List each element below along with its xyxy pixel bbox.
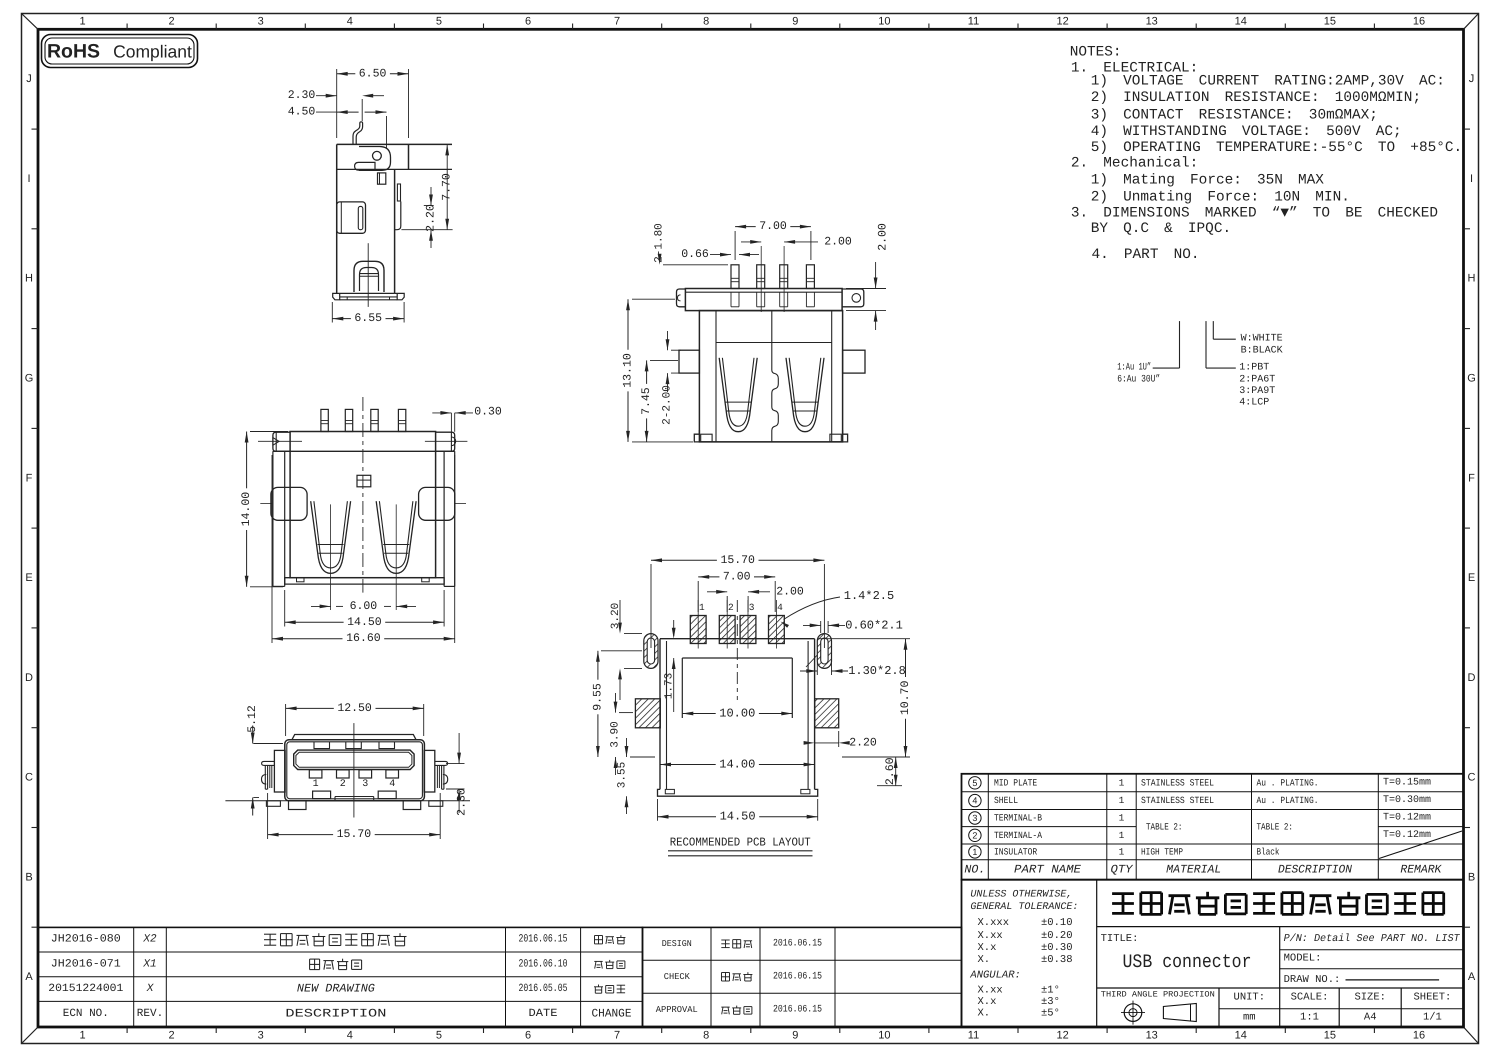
- svg-text:1.4*2.5: 1.4*2.5: [844, 589, 894, 603]
- svg-text:7.70: 7.70: [441, 173, 454, 201]
- svg-text:14: 14: [1235, 15, 1247, 27]
- svg-text:15: 15: [1324, 1030, 1336, 1042]
- svg-text:6:Au 30U”: 6:Au 30U”: [1117, 373, 1160, 385]
- svg-text:7: 7: [614, 15, 620, 27]
- svg-text:11: 11: [968, 15, 979, 27]
- svg-text:P/N: Detail See PART NO. LIST: P/N: Detail See PART NO. LIST: [1284, 933, 1461, 945]
- svg-text:5) OPERATING TEMPERATURE:-55°C: 5) OPERATING TEMPERATURE:-55°C TO +85°C.: [1091, 140, 1462, 156]
- svg-text:3:PA9T: 3:PA9T: [1239, 386, 1275, 397]
- svg-text:1:Au 1U”: 1:Au 1U”: [1117, 361, 1151, 373]
- svg-text:2. Mechanical:: 2. Mechanical:: [1071, 156, 1198, 172]
- svg-text:B:BLACK: B:BLACK: [1241, 346, 1283, 357]
- svg-text:MODEL:: MODEL:: [1284, 953, 1322, 965]
- svg-text:BY Q.C & IPQC.: BY Q.C & IPQC.: [1091, 221, 1231, 237]
- svg-text:T=0.15mm: T=0.15mm: [1383, 777, 1431, 788]
- svg-text:MID PLATE: MID PLATE: [994, 777, 1037, 788]
- svg-text:MATERIAL: MATERIAL: [1166, 863, 1221, 876]
- svg-text:STAINLESS STEEL: STAINLESS STEEL: [1141, 777, 1214, 788]
- svg-text:10: 10: [878, 15, 890, 27]
- svg-text:J: J: [1469, 73, 1475, 85]
- svg-text:±3°: ±3°: [1041, 996, 1060, 1008]
- svg-text:0.66: 0.66: [681, 248, 709, 261]
- svg-text:C: C: [1468, 772, 1476, 784]
- svg-text:B: B: [25, 871, 32, 883]
- svg-text:X.: X.: [978, 1008, 991, 1020]
- svg-text:HIGH TEMP: HIGH TEMP: [1141, 846, 1183, 857]
- svg-text:2.20: 2.20: [425, 204, 438, 232]
- svg-text:2) INSULATION RESISTANCE: 1000: 2) INSULATION RESISTANCE: 1000MΩMIN;: [1091, 90, 1421, 106]
- svg-text:UNLESS OTHERWISE,: UNLESS OTHERWISE,: [970, 890, 1072, 901]
- svg-text:JH2016-071: JH2016-071: [51, 958, 121, 970]
- svg-text:TERMINAL-A: TERMINAL-A: [994, 830, 1042, 841]
- svg-text:1.30*2.8: 1.30*2.8: [848, 664, 906, 678]
- svg-text:13: 13: [1146, 1030, 1158, 1042]
- svg-text:3: 3: [258, 15, 264, 27]
- svg-text:F: F: [26, 472, 33, 484]
- svg-text:1: 1: [1119, 795, 1125, 806]
- svg-text:2016.06.15: 2016.06.15: [773, 938, 822, 949]
- svg-text:CHECK: CHECK: [664, 972, 691, 982]
- svg-text:2.00: 2.00: [776, 585, 804, 598]
- svg-text:2: 2: [169, 1030, 175, 1042]
- svg-text:12: 12: [1056, 15, 1068, 27]
- svg-text:X.: X.: [978, 954, 991, 966]
- svg-text:9.55: 9.55: [591, 683, 604, 711]
- svg-text:8: 8: [703, 15, 709, 27]
- svg-text:±1°: ±1°: [1041, 985, 1060, 997]
- svg-text:6.55: 6.55: [354, 312, 382, 325]
- svg-text:TERMINAL-B: TERMINAL-B: [994, 813, 1042, 824]
- svg-text:7.45: 7.45: [640, 387, 653, 415]
- svg-text:14.00: 14.00: [719, 758, 755, 772]
- svg-text:NO.: NO.: [964, 863, 985, 876]
- svg-text:A4: A4: [1364, 1012, 1377, 1024]
- svg-text:±0.20: ±0.20: [1041, 930, 1073, 942]
- svg-text:INSULATOR: INSULATOR: [994, 846, 1037, 857]
- svg-text:2: 2: [972, 830, 977, 840]
- svg-text:T=0.12mm: T=0.12mm: [1383, 813, 1431, 824]
- svg-text:J: J: [26, 73, 32, 85]
- svg-text:DRAW NO.:: DRAW NO.:: [1284, 974, 1341, 986]
- svg-text:3) CONTACT RESISTANCE: 30mΩMAX: 3) CONTACT RESISTANCE: 30mΩMAX;: [1091, 107, 1378, 123]
- svg-text:±5°: ±5°: [1041, 1008, 1060, 1020]
- svg-text:14: 14: [1235, 1030, 1247, 1042]
- svg-text:E: E: [1468, 572, 1475, 584]
- svg-text:1.73: 1.73: [664, 673, 676, 699]
- svg-text:I: I: [1470, 173, 1473, 185]
- svg-text:2.20: 2.20: [849, 736, 877, 749]
- svg-text:REV.: REV.: [137, 1008, 163, 1020]
- svg-text:Black: Black: [1257, 846, 1280, 857]
- svg-text:Au . PLATING.: Au . PLATING.: [1257, 795, 1319, 806]
- svg-text:9: 9: [792, 1030, 798, 1042]
- svg-text:6.00: 6.00: [350, 600, 378, 613]
- svg-text:T=0.30mm: T=0.30mm: [1383, 795, 1431, 806]
- svg-text:D: D: [25, 672, 33, 684]
- svg-text:1: 1: [699, 602, 705, 613]
- svg-text:mm: mm: [1243, 1012, 1256, 1024]
- svg-text:±0.38: ±0.38: [1041, 954, 1073, 966]
- svg-text:10.00: 10.00: [719, 707, 755, 721]
- svg-text:6: 6: [525, 15, 531, 27]
- svg-text:1/1: 1/1: [1423, 1012, 1442, 1024]
- svg-text:Compliant: Compliant: [113, 42, 192, 62]
- svg-text:2016.06.10: 2016.06.10: [519, 958, 568, 970]
- svg-text:C: C: [25, 772, 33, 784]
- svg-text:SIZE:: SIZE:: [1354, 992, 1386, 1004]
- svg-text:T=0.12mm: T=0.12mm: [1383, 830, 1431, 841]
- svg-text:2-2.00: 2-2.00: [662, 385, 674, 425]
- svg-text:X.xx: X.xx: [978, 985, 1003, 997]
- svg-text:2.30: 2.30: [288, 89, 316, 102]
- svg-text:16: 16: [1413, 1030, 1425, 1042]
- svg-text:DESIGN: DESIGN: [662, 939, 692, 949]
- svg-text:X1: X1: [142, 958, 156, 970]
- svg-text:DESCRIPTION: DESCRIPTION: [1278, 863, 1352, 876]
- svg-text:20151224001: 20151224001: [48, 983, 123, 995]
- svg-text:I: I: [27, 173, 30, 185]
- svg-text:5: 5: [436, 15, 442, 27]
- svg-text:2016.06.15: 2016.06.15: [519, 934, 568, 946]
- svg-text:B: B: [1468, 871, 1475, 883]
- svg-text:2: 2: [169, 15, 175, 27]
- svg-text:16: 16: [1413, 15, 1425, 27]
- svg-text:15: 15: [1324, 15, 1336, 27]
- svg-text:3. DIMENSIONS MARKED “▼” TO BE: 3. DIMENSIONS MARKED “▼” TO BE CHECKED: [1071, 205, 1438, 221]
- svg-text:1: 1: [1119, 846, 1125, 857]
- svg-text:16.60: 16.60: [346, 632, 381, 645]
- svg-text:DESCRIPTION: DESCRIPTION: [285, 1008, 386, 1021]
- svg-text:4: 4: [972, 796, 977, 806]
- svg-text:1: 1: [972, 847, 977, 857]
- svg-text:X.x: X.x: [978, 942, 997, 954]
- svg-text:4: 4: [347, 1030, 353, 1042]
- svg-text:13.10: 13.10: [622, 353, 635, 388]
- svg-text:PART NAME: PART NAME: [1014, 863, 1081, 876]
- svg-text:7: 7: [614, 1030, 620, 1042]
- svg-text:1) VOLTAGE CURRENT RATING:2AMP: 1) VOLTAGE CURRENT RATING:2AMP,30V AC:: [1091, 74, 1445, 90]
- svg-text:4.50: 4.50: [288, 106, 316, 119]
- svg-text:±0.10: ±0.10: [1041, 917, 1073, 929]
- svg-text:3: 3: [972, 813, 977, 823]
- svg-text:1: 1: [313, 779, 319, 790]
- svg-text:3: 3: [362, 779, 368, 790]
- svg-text:SHELL: SHELL: [994, 795, 1018, 806]
- svg-text:0.30: 0.30: [474, 406, 502, 419]
- svg-text:5: 5: [436, 1030, 442, 1042]
- svg-text:GENERAL TOLERANCE:: GENERAL TOLERANCE:: [970, 902, 1078, 913]
- svg-text:12.50: 12.50: [337, 702, 372, 715]
- svg-text:QTY: QTY: [1111, 863, 1134, 876]
- svg-text:3.55: 3.55: [616, 762, 628, 788]
- svg-text:2016.06.15: 2016.06.15: [773, 971, 822, 982]
- svg-text:1) Mating Force: 35N MAX: 1) Mating Force: 35N MAX: [1091, 173, 1325, 189]
- svg-text:H: H: [1468, 273, 1476, 285]
- svg-text:ANGULAR:: ANGULAR:: [969, 969, 1020, 981]
- svg-text:3: 3: [749, 602, 755, 613]
- svg-text:2016.06.15: 2016.06.15: [773, 1005, 822, 1016]
- svg-text:0.60*2.1: 0.60*2.1: [845, 618, 903, 632]
- svg-text:3.90: 3.90: [610, 721, 622, 747]
- svg-text:14.00: 14.00: [240, 492, 253, 527]
- svg-text:SHEET:: SHEET:: [1413, 992, 1451, 1004]
- svg-text:SCALE:: SCALE:: [1291, 992, 1329, 1004]
- svg-text:X.x: X.x: [978, 996, 997, 1008]
- svg-text:14.50: 14.50: [347, 616, 382, 629]
- svg-text:DATE: DATE: [529, 1008, 558, 1020]
- svg-text:Au . PLATING.: Au . PLATING.: [1257, 777, 1319, 788]
- svg-text:NOTES:: NOTES:: [1070, 45, 1122, 61]
- svg-text:REMARK: REMARK: [1400, 863, 1442, 876]
- svg-text:APPROVAL: APPROVAL: [656, 1005, 698, 1015]
- svg-text:2-1.80: 2-1.80: [654, 223, 666, 263]
- svg-text:W:WHITE: W:WHITE: [1241, 334, 1283, 345]
- svg-text:X.xx: X.xx: [978, 930, 1003, 942]
- svg-text:3.20: 3.20: [610, 603, 622, 629]
- svg-text:5.12: 5.12: [246, 705, 259, 733]
- svg-text:8: 8: [703, 1030, 709, 1042]
- svg-text:2.60: 2.60: [884, 757, 897, 785]
- svg-text:THIRD ANGLE PROJECTION: THIRD ANGLE PROJECTION: [1101, 990, 1215, 999]
- svg-text:2.30: 2.30: [455, 788, 468, 816]
- svg-text:F: F: [1468, 472, 1475, 484]
- svg-text:5: 5: [972, 778, 977, 788]
- svg-text:13: 13: [1146, 15, 1158, 27]
- svg-text:3: 3: [258, 1030, 264, 1042]
- svg-text:UNIT:: UNIT:: [1234, 992, 1266, 1004]
- svg-text:CHANGE: CHANGE: [592, 1008, 632, 1021]
- svg-text:10.70: 10.70: [899, 681, 912, 716]
- svg-text:NEW DRAWING: NEW DRAWING: [297, 983, 375, 996]
- svg-text:1:PBT: 1:PBT: [1239, 362, 1269, 373]
- svg-text:±0.30: ±0.30: [1041, 942, 1073, 954]
- svg-text:9: 9: [792, 15, 798, 27]
- svg-text:15.70: 15.70: [337, 828, 372, 841]
- svg-text:7.00: 7.00: [723, 570, 751, 583]
- svg-text:TABLE 2:: TABLE 2:: [1257, 821, 1294, 832]
- svg-text:1: 1: [1119, 813, 1125, 824]
- svg-text:2: 2: [340, 779, 346, 790]
- svg-text:2: 2: [728, 602, 734, 613]
- svg-text:14.50: 14.50: [720, 810, 756, 824]
- svg-text:USB connector: USB connector: [1123, 951, 1252, 973]
- svg-text:2016.05.05: 2016.05.05: [519, 983, 568, 995]
- svg-text:D: D: [1468, 672, 1476, 684]
- svg-text:2.00: 2.00: [876, 223, 889, 251]
- svg-text:15.70: 15.70: [720, 554, 755, 567]
- svg-text:1: 1: [1119, 830, 1125, 841]
- svg-text:1: 1: [79, 1030, 85, 1042]
- svg-text:2:PA6T: 2:PA6T: [1239, 374, 1275, 385]
- svg-text:TITLE:: TITLE:: [1101, 933, 1139, 945]
- svg-text:X.xxx: X.xxx: [978, 917, 1010, 929]
- svg-text:4: 4: [347, 15, 353, 27]
- svg-text:11: 11: [968, 1030, 979, 1042]
- svg-text:2.00: 2.00: [824, 235, 852, 248]
- svg-text:4: 4: [389, 779, 395, 790]
- svg-text:1: 1: [79, 15, 85, 27]
- svg-text:G: G: [25, 373, 34, 385]
- svg-text:12: 12: [1056, 1030, 1068, 1042]
- svg-text:1:1: 1:1: [1300, 1012, 1319, 1024]
- svg-text:10: 10: [878, 1030, 890, 1042]
- svg-text:6.50: 6.50: [359, 67, 387, 80]
- svg-text:4. PART NO.: 4. PART NO.: [1092, 247, 1200, 263]
- svg-text:1: 1: [1119, 777, 1125, 788]
- svg-text:A: A: [25, 971, 33, 983]
- svg-text:TABLE 2:: TABLE 2:: [1146, 821, 1183, 832]
- svg-text:RECOMMENDED PCB LAYOUT: RECOMMENDED PCB LAYOUT: [670, 836, 811, 850]
- svg-text:4: 4: [777, 602, 783, 613]
- svg-text:RoHS: RoHS: [47, 41, 100, 63]
- svg-text:X2: X2: [142, 934, 157, 946]
- svg-text:7.00: 7.00: [759, 220, 787, 233]
- svg-text:E: E: [25, 572, 32, 584]
- svg-text:JH2016-080: JH2016-080: [51, 934, 121, 946]
- svg-text:A: A: [1468, 971, 1476, 983]
- svg-text:4:LCP: 4:LCP: [1239, 398, 1269, 409]
- svg-text:4) WITHSTANDING VOLTAGE: 500V: 4) WITHSTANDING VOLTAGE: 500V AC;: [1091, 124, 1402, 140]
- svg-text:G: G: [1467, 373, 1476, 385]
- svg-text:6: 6: [525, 1030, 531, 1042]
- svg-text:2) Unmating Force: 10N MIN.: 2) Unmating Force: 10N MIN.: [1091, 189, 1350, 205]
- svg-text:STAINLESS STEEL: STAINLESS STEEL: [1141, 795, 1214, 806]
- svg-text:ECN NO.: ECN NO.: [63, 1008, 109, 1020]
- svg-text:H: H: [25, 273, 33, 285]
